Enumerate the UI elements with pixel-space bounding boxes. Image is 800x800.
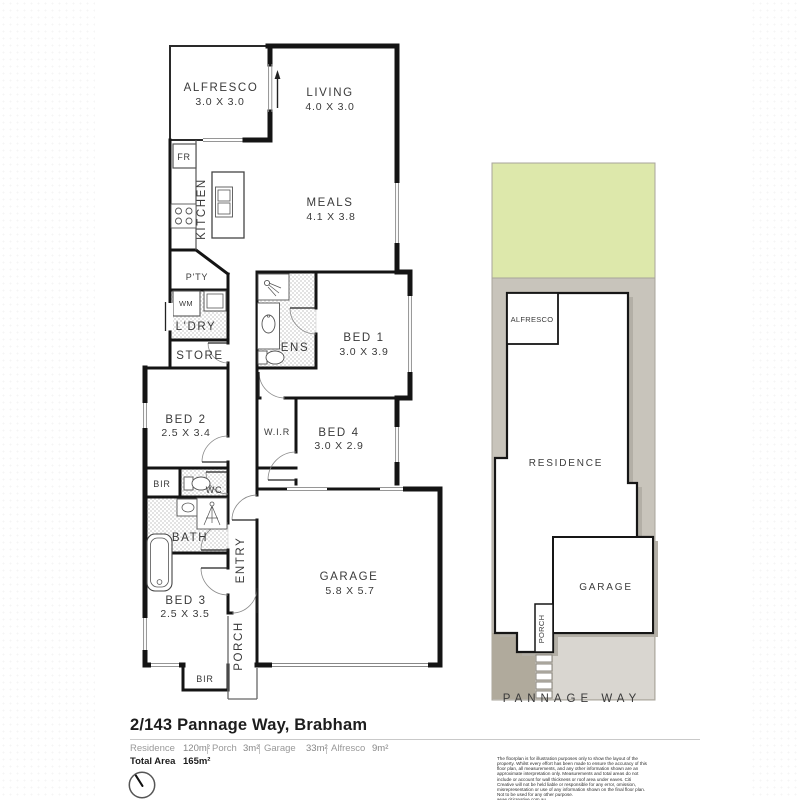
label-fridge: FR: [177, 152, 191, 162]
label-washing-machine: WM: [179, 299, 193, 308]
site-label-alfresco: ALFRESCO: [511, 315, 554, 324]
area-separator: [259, 744, 260, 754]
site-label-garage: GARAGE: [579, 582, 633, 593]
cooktop-icon: [171, 204, 196, 228]
room-label-porch: PORCH: [233, 621, 245, 671]
site-label-porch: PORCH: [537, 615, 546, 644]
room-label-bed4: BED 4: [318, 427, 359, 439]
room-label-meals: MEALS: [307, 197, 354, 209]
site-grass: [492, 163, 655, 278]
total-area-value: 165m²: [183, 756, 210, 767]
room-label-bed3: BED 3: [165, 595, 206, 607]
ens-vanity: [258, 303, 280, 349]
disclaimer-text: The floorplan is for illustration purpos…: [497, 756, 647, 800]
street-label: PANNAGE WAY: [503, 693, 642, 705]
area-value-residence: 120m²: [183, 743, 210, 754]
area-value-garage: 33m²: [306, 743, 328, 754]
room-label-wir: W.I.R: [264, 427, 290, 437]
area-value-porch: 3m²: [243, 743, 259, 754]
title-divider: [130, 739, 700, 740]
site-path: [553, 633, 654, 699]
room-label-wc: WC: [206, 485, 223, 495]
bath-vanity: [177, 499, 199, 516]
room-label-store: STORE: [176, 350, 223, 362]
site-steps: [536, 655, 552, 698]
area-label-alfresco: Alfresco: [331, 743, 365, 754]
room-dims-garage: 5.8 X 5.7: [325, 585, 374, 597]
floorplan-page: ALFRESCO RESIDENCE GARAGE PORCH PANNAGE …: [0, 0, 800, 800]
room-label-ensuite: ENS: [281, 342, 309, 354]
room-dims-meals: 4.1 X 3.8: [306, 211, 355, 223]
room-label-entry: ENTRY: [235, 537, 247, 584]
area-separator: [326, 744, 327, 754]
area-value-alfresco: 9m²: [372, 743, 388, 754]
north-arrow: [126, 769, 158, 800]
area-separator: [207, 744, 208, 754]
plans-svg: ALFRESCO RESIDENCE GARAGE PORCH PANNAGE …: [0, 0, 800, 800]
room-dims-bed2: 2.5 X 3.4: [161, 427, 210, 439]
page-title: 2/143 Pannage Way, Brabham: [130, 716, 367, 735]
room-label-bed1: BED 1: [343, 332, 384, 344]
room-label-garage: GARAGE: [320, 571, 379, 583]
label-bir-bed3: BIR: [196, 674, 213, 684]
total-area-label: Total Area: [130, 756, 175, 767]
site-plan: ALFRESCO RESIDENCE GARAGE PORCH PANNAGE …: [492, 163, 658, 705]
room-label-pantry: P'TY: [186, 272, 208, 282]
area-label-porch: Porch: [212, 743, 237, 754]
room-labels: ALFRESCO 3.0 X 3.0 LIVING 4.0 X 3.0 MEAL…: [153, 82, 388, 684]
room-dims-living: 4.0 X 3.0: [305, 101, 354, 113]
room-dims-bed3: 2.5 X 3.5: [160, 608, 209, 620]
room-label-laundry: L'DRY: [176, 321, 217, 333]
entry-direction-arrow-icon: [275, 70, 281, 108]
site-label-residence: RESIDENCE: [529, 458, 604, 469]
area-label-garage: Garage: [264, 743, 296, 754]
room-label-bath: BATH: [172, 532, 208, 544]
room-label-bed2: BED 2: [165, 414, 206, 426]
alfresco-window: [203, 137, 245, 144]
room-label-living: LIVING: [306, 87, 353, 99]
ens-shower: [258, 274, 289, 300]
room-dims-bed1: 3.0 X 3.9: [339, 346, 388, 358]
room-dims-alfresco: 3.0 X 3.0: [195, 96, 244, 108]
label-bir-bed2: BIR: [153, 479, 170, 489]
floor-plan: ALFRESCO 3.0 X 3.0 LIVING 4.0 X 3.0 MEAL…: [142, 46, 441, 699]
room-label-alfresco: ALFRESCO: [184, 82, 259, 94]
room-dims-bed4: 3.0 X 2.9: [314, 440, 363, 452]
room-label-kitchen: KITCHEN: [196, 178, 208, 240]
area-label-residence: Residence: [130, 743, 175, 754]
